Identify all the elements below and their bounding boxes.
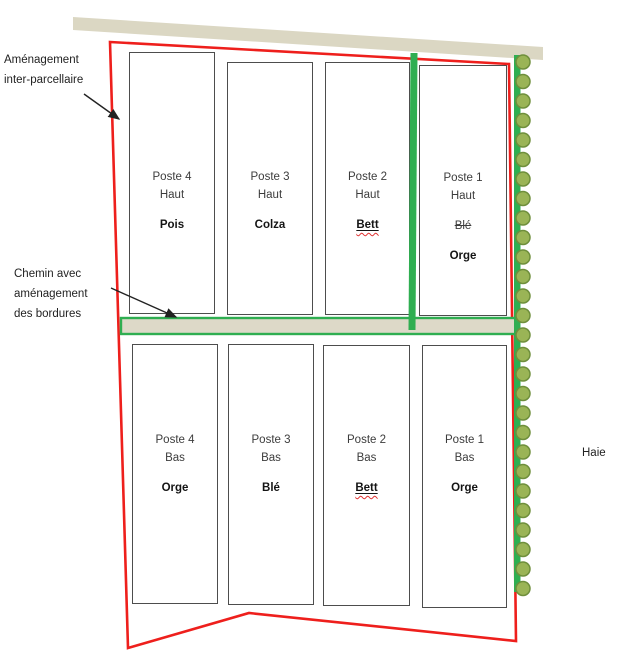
haie-label: Haie: [582, 446, 606, 460]
plot-title: Poste 4: [130, 168, 214, 186]
chemin-label-line3: des bordures: [14, 304, 88, 324]
plot-poste-3-bas: Poste 3 Bas Blé: [228, 344, 314, 605]
plot-crop: Pois: [130, 216, 214, 234]
plot-crop: Bett: [326, 216, 409, 234]
plot-crop: Orge: [423, 479, 506, 497]
plot-poste-4-bas: Poste 4 Bas Orge: [132, 344, 218, 604]
plot-row: Bas: [423, 449, 506, 467]
plot-poste-1-haut: Poste 1 Haut Blé Orge: [419, 65, 507, 316]
plot-row: Haut: [130, 186, 214, 204]
chemin-label-line2: aménagement: [14, 284, 88, 304]
plot-row: Haut: [326, 186, 409, 204]
plot-row: Bas: [324, 449, 409, 467]
plot-title: Poste 4: [133, 431, 217, 449]
inter-parcel-label-line2: inter-parcellaire: [4, 70, 83, 90]
plot-poste-2-haut: Poste 2 Haut Bett: [325, 62, 410, 315]
green-divider-line: [412, 53, 414, 330]
plot-title: Poste 3: [228, 168, 312, 186]
plot-crop: Bett: [324, 479, 409, 497]
plot-title: Poste 2: [324, 431, 409, 449]
plot-row: Bas: [133, 449, 217, 467]
plot-crop: Orge: [133, 479, 217, 497]
plot-crop: Orge: [420, 247, 506, 265]
plot-row: Haut: [228, 186, 312, 204]
plot-row: Haut: [420, 187, 506, 205]
inter-parcel-label-line1: Aménagement: [4, 50, 83, 70]
inter-parcel-arrow: [84, 94, 119, 119]
hedge-circles: [516, 55, 530, 596]
plot-title: Poste 3: [229, 431, 313, 449]
inter-parcel-label: Aménagement inter-parcellaire: [4, 50, 83, 90]
chemin-label: Chemin avec aménagement des bordures: [14, 264, 88, 324]
plot-title: Poste 1: [420, 169, 506, 187]
plot-row: Bas: [229, 449, 313, 467]
plot-poste-4-haut: Poste 4 Haut Pois: [129, 52, 215, 314]
chemin-label-line1: Chemin avec: [14, 264, 88, 284]
plot-crop: Blé: [229, 479, 313, 497]
plot-crop: Colza: [228, 216, 312, 234]
chemin-bar: [121, 318, 518, 334]
field-plan-diagram: Poste 4 Haut Pois Poste 3 Haut Colza Pos…: [0, 0, 621, 672]
plot-poste-2-bas: Poste 2 Bas Bett: [323, 345, 410, 606]
plot-crop-struck: Blé: [420, 217, 506, 235]
hedge-line: [514, 55, 521, 592]
plot-title: Poste 2: [326, 168, 409, 186]
plot-title: Poste 1: [423, 431, 506, 449]
plot-poste-1-bas: Poste 1 Bas Orge: [422, 345, 507, 608]
plot-poste-3-haut: Poste 3 Haut Colza: [227, 62, 313, 315]
